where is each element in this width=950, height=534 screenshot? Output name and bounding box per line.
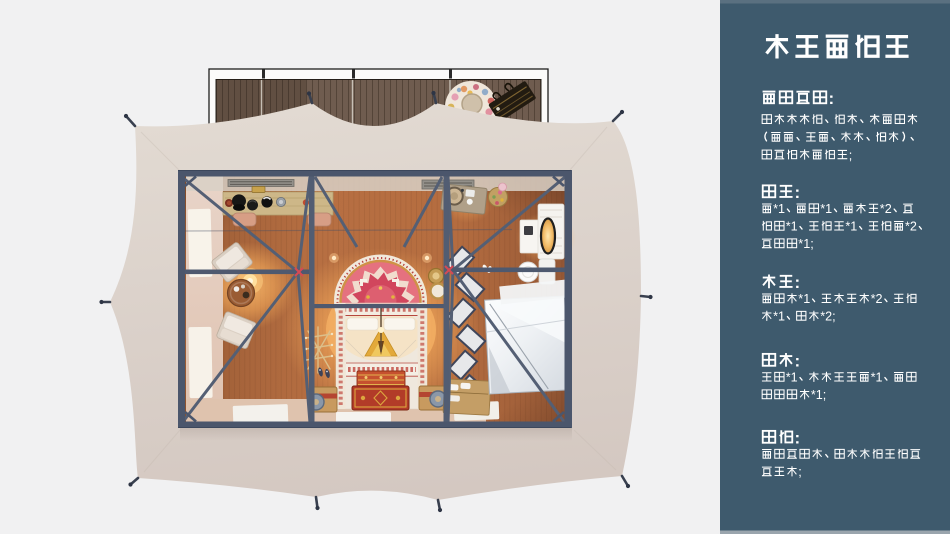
svg-text:;: ; [849,148,853,162]
svg-text:*1: *1 [845,220,857,234]
svg-text:*1: *1 [786,371,798,385]
svg-text:*1: *1 [773,310,785,324]
svg-text:*2: *2 [880,202,892,216]
svg-text:;: ; [798,465,802,479]
svg-text:*1: *1 [773,202,785,216]
svg-text:*1: *1 [871,371,883,385]
svg-text:*2;: *2; [820,310,835,324]
svg-text:*1: *1 [798,292,810,306]
svg-text:*1;: *1; [811,388,826,402]
svg-text::: : [795,351,801,370]
svg-text:*1: *1 [820,202,832,216]
svg-text:*2: *2 [871,292,883,306]
svg-text:*1: *1 [786,220,798,234]
svg-text:*2: *2 [905,220,917,234]
svg-text:*1;: *1; [798,237,813,251]
svg-text::: : [795,428,801,447]
svg-text::: : [795,183,801,202]
svg-text::: : [795,273,801,292]
svg-text::: : [829,89,835,108]
